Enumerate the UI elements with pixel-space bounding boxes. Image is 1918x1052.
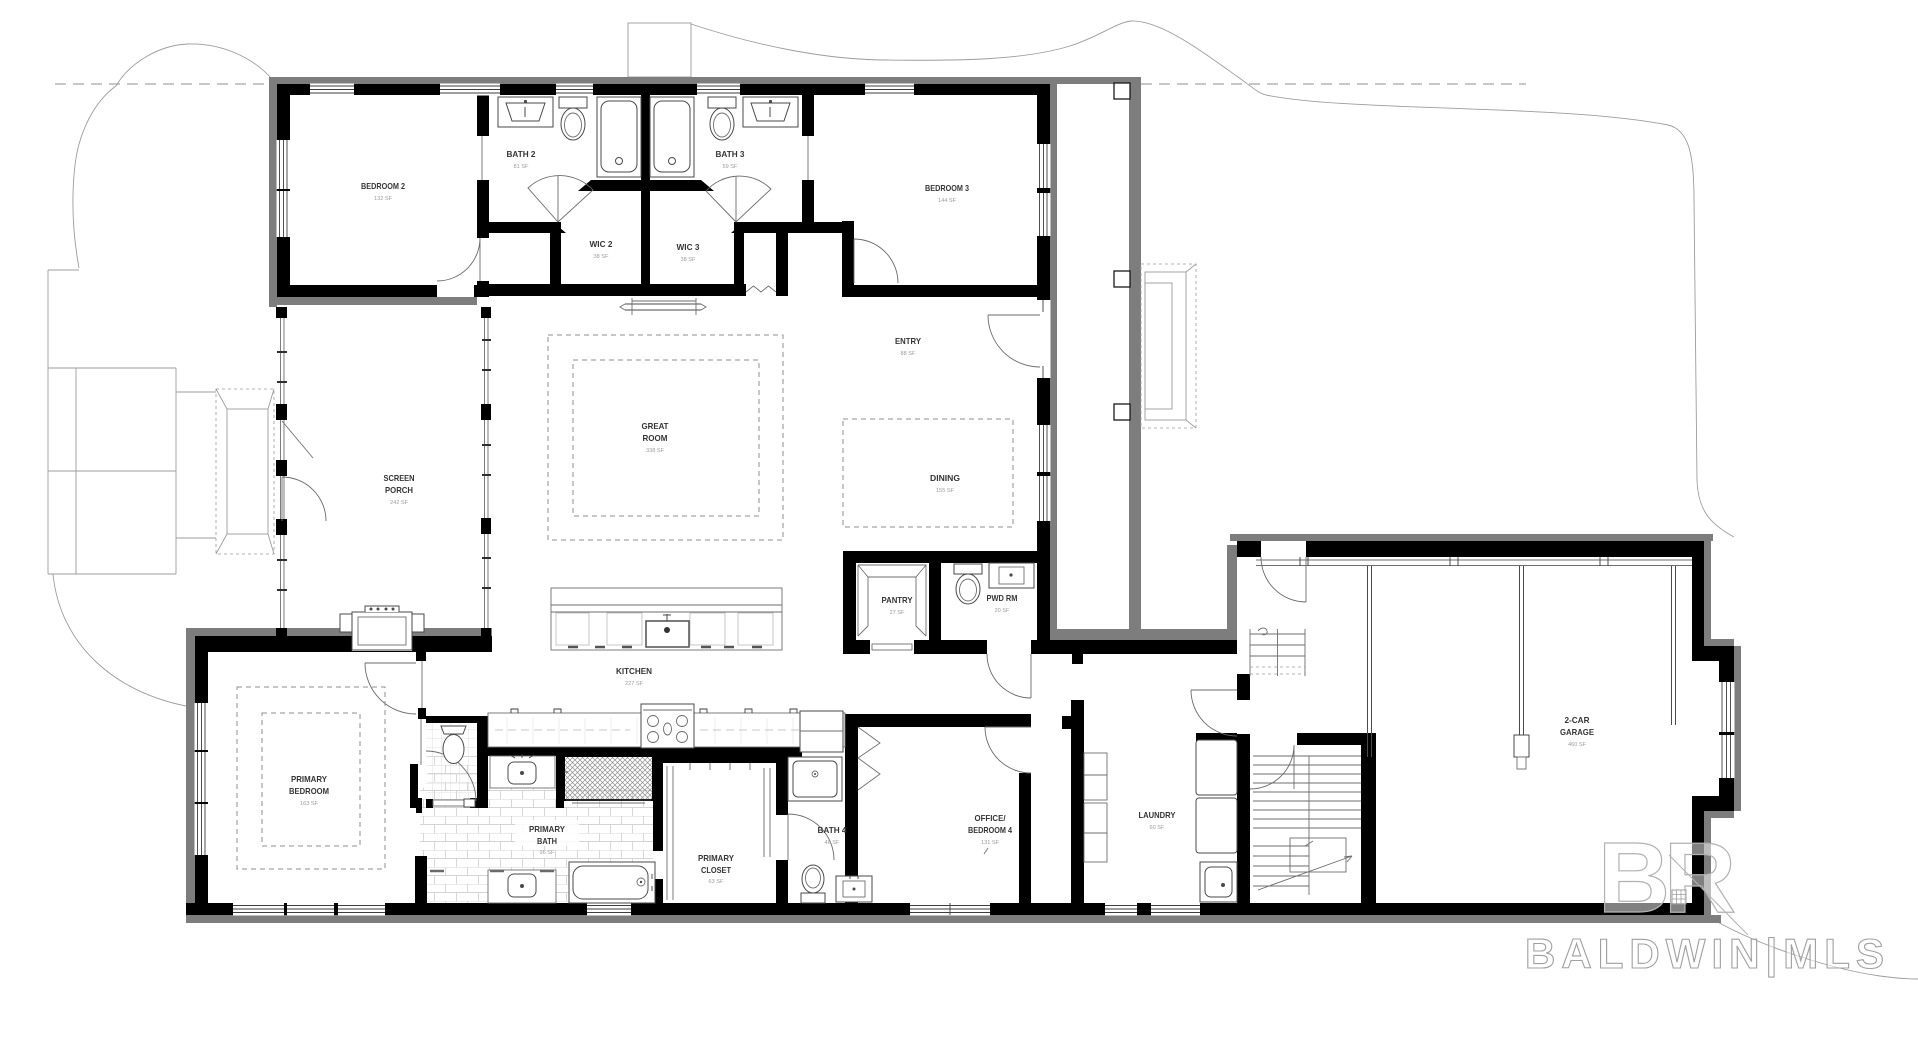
svg-text:38 SF: 38 SF — [594, 254, 610, 260]
svg-text:BATH 4: BATH 4 — [818, 825, 847, 835]
svg-text:144 SF: 144 SF — [938, 198, 957, 204]
svg-text:338 SF: 338 SF — [646, 448, 665, 454]
svg-text:PRIMARY: PRIMARY — [698, 853, 734, 863]
svg-text:BATH 3: BATH 3 — [716, 149, 745, 159]
svg-text:CLOSET: CLOSET — [701, 865, 732, 875]
svg-text:460 SF: 460 SF — [1568, 742, 1587, 748]
svg-text:OFFICE/: OFFICE/ — [975, 813, 1007, 823]
svg-text:88 SF: 88 SF — [901, 351, 917, 357]
svg-text:PWD RM: PWD RM — [987, 593, 1018, 603]
svg-text:PORCH: PORCH — [385, 485, 413, 495]
svg-text:SCREEN: SCREEN — [384, 473, 415, 483]
svg-text:R: R — [1664, 822, 1736, 934]
svg-text:BATH: BATH — [537, 836, 557, 846]
svg-text:2-CAR: 2-CAR — [1565, 715, 1590, 725]
svg-text:227 SF: 227 SF — [625, 681, 644, 687]
svg-text:59 SF: 59 SF — [723, 164, 739, 170]
svg-text:155 SF: 155 SF — [936, 488, 955, 494]
svg-text:132 SF: 132 SF — [374, 196, 393, 202]
svg-text:GREAT: GREAT — [642, 421, 670, 431]
svg-text:DINING: DINING — [930, 473, 960, 483]
svg-text:163 SF: 163 SF — [300, 801, 319, 807]
svg-text:PRIMARY: PRIMARY — [291, 774, 327, 784]
svg-text:BATH 2: BATH 2 — [507, 149, 536, 159]
svg-text:LAUNDRY: LAUNDRY — [1139, 810, 1176, 820]
svg-text:ENTRY: ENTRY — [895, 336, 921, 346]
svg-text:60 SF: 60 SF — [1150, 825, 1166, 831]
svg-text:ROOM: ROOM — [643, 433, 668, 443]
svg-text:38 SF: 38 SF — [681, 257, 697, 263]
svg-text:WIC 3: WIC 3 — [677, 242, 700, 252]
svg-text:242 SF: 242 SF — [390, 500, 409, 506]
svg-text:BALDWIN|MLS: BALDWIN|MLS — [1525, 930, 1887, 978]
svg-text:BEDROOM 2: BEDROOM 2 — [361, 181, 405, 191]
svg-text:96 SF: 96 SF — [540, 850, 556, 856]
svg-text:27 SF: 27 SF — [890, 610, 906, 616]
svg-text:B: B — [1598, 822, 1670, 934]
svg-text:BEDROOM: BEDROOM — [289, 786, 329, 796]
svg-text:BEDROOM 4: BEDROOM 4 — [968, 825, 1012, 835]
svg-text:20 SF: 20 SF — [995, 608, 1011, 614]
svg-text:46 SF: 46 SF — [825, 840, 841, 846]
svg-text:131 SF: 131 SF — [981, 840, 1000, 846]
svg-text:WIC 2: WIC 2 — [590, 239, 613, 249]
svg-text:63 SF: 63 SF — [709, 879, 725, 885]
svg-text:GARAGE: GARAGE — [1560, 727, 1594, 737]
svg-text:81 SF: 81 SF — [514, 164, 530, 170]
svg-text:PRIMARY: PRIMARY — [529, 824, 565, 834]
svg-text:KITCHEN: KITCHEN — [616, 666, 652, 676]
svg-text:BEDROOM 3: BEDROOM 3 — [925, 183, 969, 193]
svg-text:PANTRY: PANTRY — [882, 595, 913, 605]
